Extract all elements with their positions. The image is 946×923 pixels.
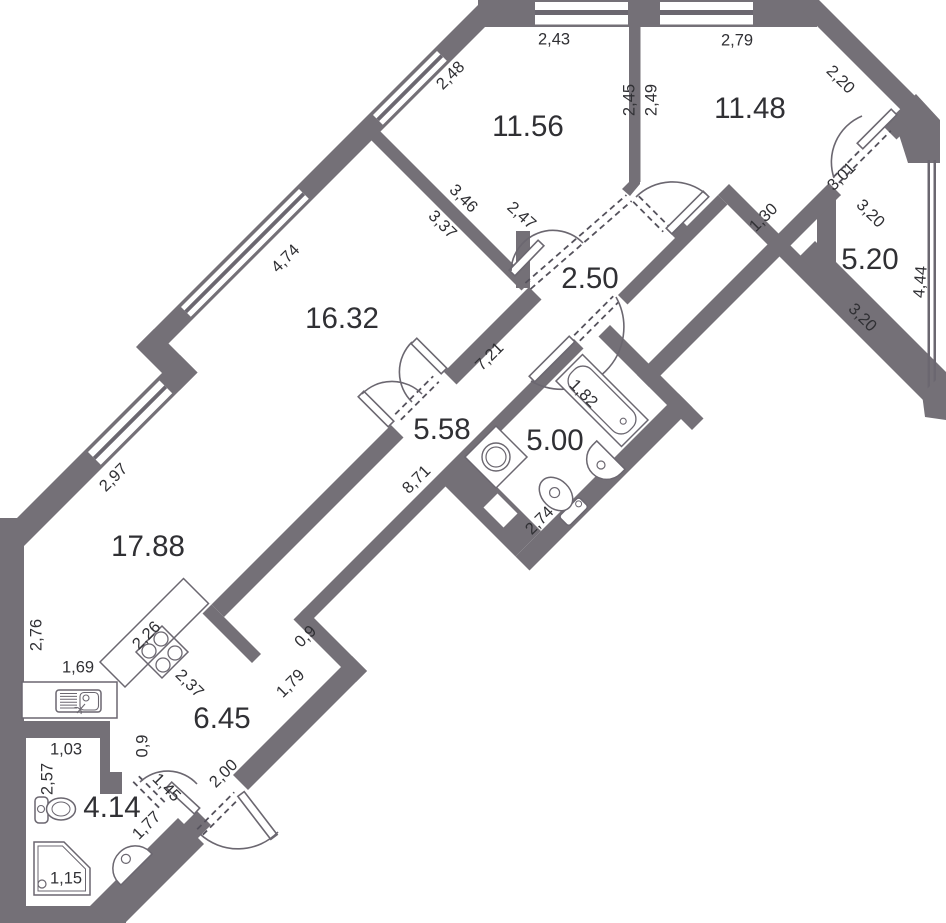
svg-text:1,69: 1,69 xyxy=(62,658,94,676)
svg-text:2,45: 2,45 xyxy=(620,84,638,116)
svg-text:1,03: 1,03 xyxy=(50,740,82,758)
svg-text:11.48: 11.48 xyxy=(714,92,786,125)
svg-text:11.56: 11.56 xyxy=(492,110,564,143)
svg-text:5.00: 5.00 xyxy=(526,424,583,457)
svg-text:2.50: 2.50 xyxy=(561,262,618,295)
svg-text:5.58: 5.58 xyxy=(413,413,470,446)
svg-text:0,9: 0,9 xyxy=(133,735,151,758)
svg-text:16.32: 16.32 xyxy=(305,302,379,335)
svg-text:2,79: 2,79 xyxy=(721,31,753,49)
svg-text:2,76: 2,76 xyxy=(27,619,45,651)
svg-text:5.20: 5.20 xyxy=(841,243,898,276)
svg-text:2,43: 2,43 xyxy=(538,30,570,48)
svg-text:2,49: 2,49 xyxy=(642,84,660,116)
svg-text:4,44: 4,44 xyxy=(910,265,931,299)
svg-text:4.14: 4.14 xyxy=(83,791,140,824)
svg-text:1,15: 1,15 xyxy=(50,869,82,887)
svg-text:17.88: 17.88 xyxy=(111,530,185,563)
svg-text:6.45: 6.45 xyxy=(193,702,250,735)
svg-text:2,57: 2,57 xyxy=(38,763,56,795)
